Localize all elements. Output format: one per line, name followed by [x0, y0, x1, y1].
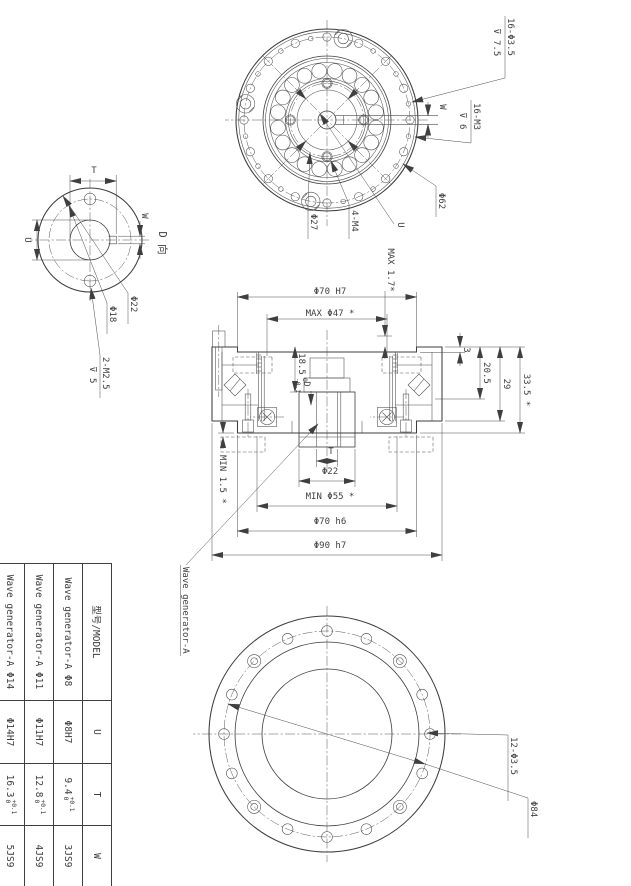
dim-18-5: 18.5: [296, 353, 306, 375]
header-t: T: [83, 764, 112, 826]
model-spec-table: 型号/MODEL U T W Wave generator-A Φ8 Φ8H7 …: [0, 563, 112, 886]
back-view: 12-Φ3.5 Φ84: [193, 606, 538, 862]
front-note-tapped-holes-depth: ⊽ 6: [457, 112, 467, 129]
cell-model: Wave generator-A Φ8: [54, 564, 83, 701]
d-view-dim-t: T: [91, 166, 97, 176]
table-row: Wave generator-A Φ8 Φ8H7 9.4+0.10 3JS9: [54, 564, 83, 886]
d-view: D 向 T W U Φ22 Φ18 2-M2.5 ⊽ 5: [22, 166, 169, 398]
cell-t: 16.3+0.10: [0, 764, 25, 826]
dim-3: 3: [461, 347, 471, 352]
back-label-bolt-circle: Φ84: [528, 801, 538, 817]
cell-w: 3JS9: [54, 826, 83, 886]
dim-29: 29: [501, 379, 511, 390]
dim-33-5: 33.5 *: [521, 374, 531, 407]
dim-20-5: 20.5: [481, 362, 491, 384]
front-label-4m4: 4-M4: [349, 210, 359, 232]
dim-18-5-lower-tol: -0.1: [294, 378, 301, 393]
table-row: Wave generator-A Φ14 Φ14H7 16.3+0.10 5JS…: [0, 564, 25, 886]
d-view-label-od: Φ22: [128, 296, 138, 312]
table-header-row: 型号/MODEL U T W: [83, 564, 112, 886]
dim-recess-diameter: Φ70 H7: [314, 287, 347, 297]
section-view-direction-label: D: [301, 381, 311, 386]
front-note-through-holes-depth: ⊽ 7.5: [491, 28, 501, 56]
front-view: W 16-Φ3.5 ⊽ 7.5 16-M3 ⊽ 6 Φ62 4-M4 Φ27 U: [225, 16, 515, 239]
cell-model: Wave generator-A Φ14: [0, 564, 25, 701]
dim-hub-22: Φ22: [322, 467, 338, 477]
cell-w: 5JS9: [0, 826, 25, 886]
d-view-title: D 向: [156, 231, 169, 254]
cell-u: Φ11H7: [25, 701, 54, 764]
cell-model: Wave generator-A Φ11: [25, 564, 54, 701]
front-note-tapped-holes: 16-M3: [471, 103, 481, 130]
cell-u: Φ8H7: [54, 701, 83, 764]
d-view-note-tapped: 2-M2.5: [100, 357, 110, 390]
d-view-dim-u: U: [22, 237, 32, 242]
header-u: U: [83, 701, 112, 764]
d-view-dim-w: W: [139, 213, 149, 219]
drawing-sheet: W 16-Φ3.5 ⊽ 7.5 16-M3 ⊽ 6 Φ62 4-M4 Φ27 U: [0, 0, 631, 886]
front-label-bolt-circle: Φ62: [436, 193, 446, 209]
d-view-label-bolt-circle: Φ18: [107, 306, 117, 322]
front-dim-keyway-width: W: [437, 104, 447, 110]
cell-t: 9.4+0.10: [54, 764, 83, 826]
front-dim-bore: U: [395, 222, 405, 227]
dim-70-h6: Φ70 h6: [314, 517, 347, 527]
dim-min-55: MIN Φ55 *: [306, 492, 355, 502]
header-w: W: [83, 826, 112, 886]
header-model: 型号/MODEL: [83, 564, 112, 701]
dim-90-h7: Φ90 h7: [314, 541, 347, 551]
section-view: Φ70 H7 MAX Φ47 * MAX 1.7* 3 20.5 29 33.5…: [180, 248, 531, 656]
front-note-through-holes: 16-Φ3.5: [505, 18, 515, 56]
dim-max-17: MAX 1.7*: [385, 248, 395, 291]
dim-keyway-t: T: [328, 447, 334, 457]
front-label-inner-circle: Φ27: [308, 214, 318, 230]
cell-u: Φ14H7: [0, 701, 25, 764]
cell-w: 4JS9: [25, 826, 54, 886]
drawing-page: W 16-Φ3.5 ⊽ 7.5 16-M3 ⊽ 6 Φ62 4-M4 Φ27 U: [0, 0, 631, 886]
table-row: Wave generator-A Φ11 Φ11H7 12.8+0.10 4JS…: [25, 564, 54, 886]
wave-generator-callout: Wave generator-A: [180, 567, 190, 654]
cell-t: 12.8+0.10: [25, 764, 54, 826]
section-internals: [213, 331, 432, 447]
back-note-holes: 12-Φ3.5: [508, 737, 518, 775]
section-centerlines: [219, 325, 406, 474]
dim-max-47: MAX Φ47 *: [306, 309, 355, 319]
d-view-note-tapped-depth: ⊽ 5: [87, 366, 97, 383]
dim-min-1-5: MIN 1.5 *: [217, 455, 227, 504]
